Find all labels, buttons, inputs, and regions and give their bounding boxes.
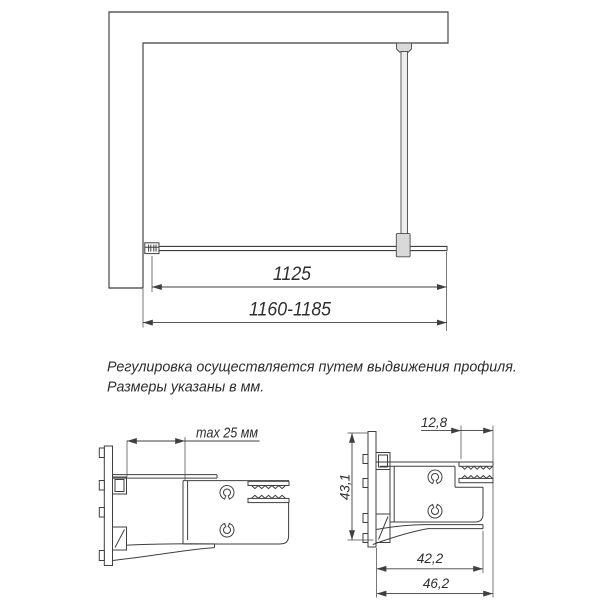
dimension-label-glass-channel: 12,8	[421, 415, 448, 430]
wall-profile-clamp	[145, 243, 159, 254]
dimension-label-max-extension: max 25 мм	[196, 425, 258, 442]
drawing-canvas: 1125 1160-1185 Регулировка осуществляетс…	[0, 0, 600, 600]
wall-profile-tab	[363, 455, 368, 464]
body-left-edge	[183, 481, 188, 544]
glass-channel-lower-jaw	[248, 498, 289, 502]
dimension-label-profile-depth: 42,2	[417, 551, 444, 566]
wall-profile-tab	[363, 534, 368, 543]
support-bar-rod	[401, 52, 408, 235]
glass-channel-lower-jaw	[459, 478, 493, 482]
wall-profile-strip	[368, 432, 376, 548]
wall-profile-tab	[363, 514, 368, 523]
dimension-label-profile-overall: 46,2	[423, 576, 450, 591]
support-bar-connector	[396, 234, 410, 257]
dimension-label-profile-height: 43,1	[338, 474, 353, 500]
top-rail-arm	[113, 475, 218, 479]
wall-profile-strip	[104, 446, 112, 566]
profile-section-extended: max 25 мм	[99, 425, 289, 566]
ceiling-bracket	[397, 43, 412, 52]
dimension-max-extension: max 25 мм	[127, 425, 260, 481]
wall-profile-tab	[99, 448, 104, 458]
note-line-1: Регулировка осуществляется путем выдвиже…	[107, 360, 517, 376]
note-line-2: Размеры указаны в мм.	[107, 380, 264, 396]
profile-section-retracted: 43,1 12,8 42,2 46,2	[338, 415, 494, 598]
screw-boss-upper	[428, 470, 442, 484]
screw-boss-upper	[220, 486, 234, 500]
glass-channel-upper-jaw	[459, 462, 493, 466]
screw-boss-lower	[428, 504, 442, 518]
dimension-overall-width: 1160-1185	[143, 289, 447, 328]
notes: Регулировка осуществляется путем выдвиже…	[107, 360, 517, 396]
technical-drawing-page: 1125 1160-1185 Регулировка осуществляетс…	[0, 0, 600, 600]
wall-profile-tab	[99, 508, 104, 518]
foot-curve-lower	[113, 548, 215, 561]
body-right-edge	[281, 503, 289, 544]
wall-profile-tab	[99, 481, 104, 491]
body-left-edge	[390, 462, 394, 522]
plan-view: 1125 1160-1185	[109, 12, 448, 331]
wall-profile-tab	[363, 479, 368, 488]
dimension-profile-overall: 46,2	[377, 576, 493, 594]
dimension-label-glass-width: 1125	[273, 263, 311, 285]
wall-profile-tab	[99, 551, 104, 561]
glass-channel-upper-jaw	[248, 481, 289, 485]
screw-boss-lower	[220, 523, 234, 537]
dimension-label-overall-width: 1160-1185	[249, 299, 331, 321]
body-right-edge	[475, 487, 483, 522]
